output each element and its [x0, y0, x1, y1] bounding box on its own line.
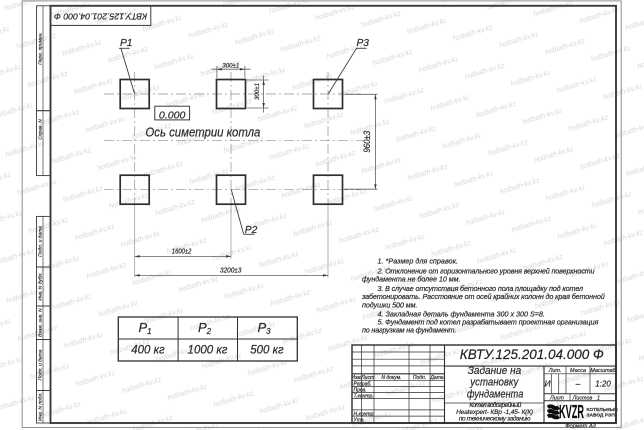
- svg-text:Справ. N: Справ. N: [37, 119, 43, 140]
- svg-text:Подп.: Подп.: [413, 375, 426, 381]
- svg-text:Котел водогрейный: Котел водогрейный: [469, 401, 521, 409]
- svg-text:Подп. и дата: Подп. и дата: [37, 226, 43, 257]
- svg-text:фундамента: фундамента: [467, 389, 524, 401]
- svg-text:Масштаб: Масштаб: [590, 368, 616, 374]
- svg-text:1:20: 1:20: [595, 380, 611, 389]
- svg-text:Р1: Р1: [120, 38, 132, 49]
- svg-text:Подп. и дата: Подп. и дата: [37, 349, 43, 380]
- svg-text:300±1: 300±1: [222, 62, 239, 69]
- svg-text:Взам. инв. N: Взам. инв. N: [37, 308, 43, 337]
- svg-text:подушки 500 мм.: подушки 500 мм.: [362, 301, 418, 310]
- svg-text:по нагрузкам на фундамент.: по нагрузкам на фундамент.: [362, 326, 456, 335]
- svg-text:Инв. N дубл.: Инв. N дубл.: [37, 272, 43, 300]
- svg-text:1600±2: 1600±2: [172, 248, 192, 255]
- svg-text:по техническому заданию: по техническому заданию: [459, 415, 531, 423]
- svg-text:500 кг: 500 кг: [250, 345, 284, 357]
- svg-text:Ось симетрии котла: Ось симетрии котла: [145, 125, 260, 140]
- svg-text:400 кг: 400 кг: [131, 345, 165, 357]
- svg-text:Пров.: Пров.: [354, 388, 367, 394]
- svg-text:960±3: 960±3: [362, 131, 372, 153]
- svg-text:KVZR: KVZR: [559, 401, 584, 422]
- svg-text:фундамента не более 10 мм.: фундамента не более 10 мм.: [362, 274, 461, 283]
- svg-text:0.000: 0.000: [159, 109, 186, 121]
- svg-text:ЗАВОД РЭП: ЗАВОД РЭП: [587, 413, 616, 419]
- svg-text:1000 кг: 1000 кг: [188, 345, 228, 357]
- svg-text:N докум.: N докум.: [381, 375, 401, 381]
- svg-text:Лит.: Лит.: [548, 368, 562, 374]
- svg-text:3200±3: 3200±3: [220, 267, 241, 274]
- svg-text:Задание на: Задание на: [468, 365, 522, 377]
- svg-text:КВТУ.125.201.04.000 Ф: КВТУ.125.201.04.000 Ф: [460, 346, 604, 362]
- svg-text:КВТУ.125.201.04.000 Ф: КВТУ.125.201.04.000 Ф: [54, 11, 148, 20]
- svg-text:Н.контр.: Н.контр.: [354, 411, 375, 417]
- svg-text:И: И: [545, 379, 552, 389]
- svg-text:Инв. N подл.: Инв. N подл.: [37, 392, 43, 421]
- svg-text:1. *Размер для справок.: 1. *Размер для справок.: [378, 257, 459, 266]
- svg-text:300±1: 300±1: [254, 83, 261, 100]
- svg-text:Разраб.: Разраб.: [354, 381, 372, 387]
- svg-text:установку: установку: [469, 377, 519, 389]
- svg-text:Перв. примен.: Перв. примен.: [37, 32, 43, 65]
- svg-text:–: –: [575, 379, 581, 389]
- svg-text:Масса: Масса: [570, 368, 586, 374]
- svg-text:Формат А3: Формат А3: [565, 423, 596, 429]
- svg-text:Т.контр.: Т.контр.: [354, 394, 374, 400]
- svg-text:Лист: Лист: [360, 375, 374, 381]
- svg-text:Р3: Р3: [357, 38, 370, 49]
- svg-text:Утв.: Утв.: [354, 418, 365, 424]
- svg-text:1: 1: [597, 395, 600, 401]
- svg-text:Дата: Дата: [429, 375, 443, 381]
